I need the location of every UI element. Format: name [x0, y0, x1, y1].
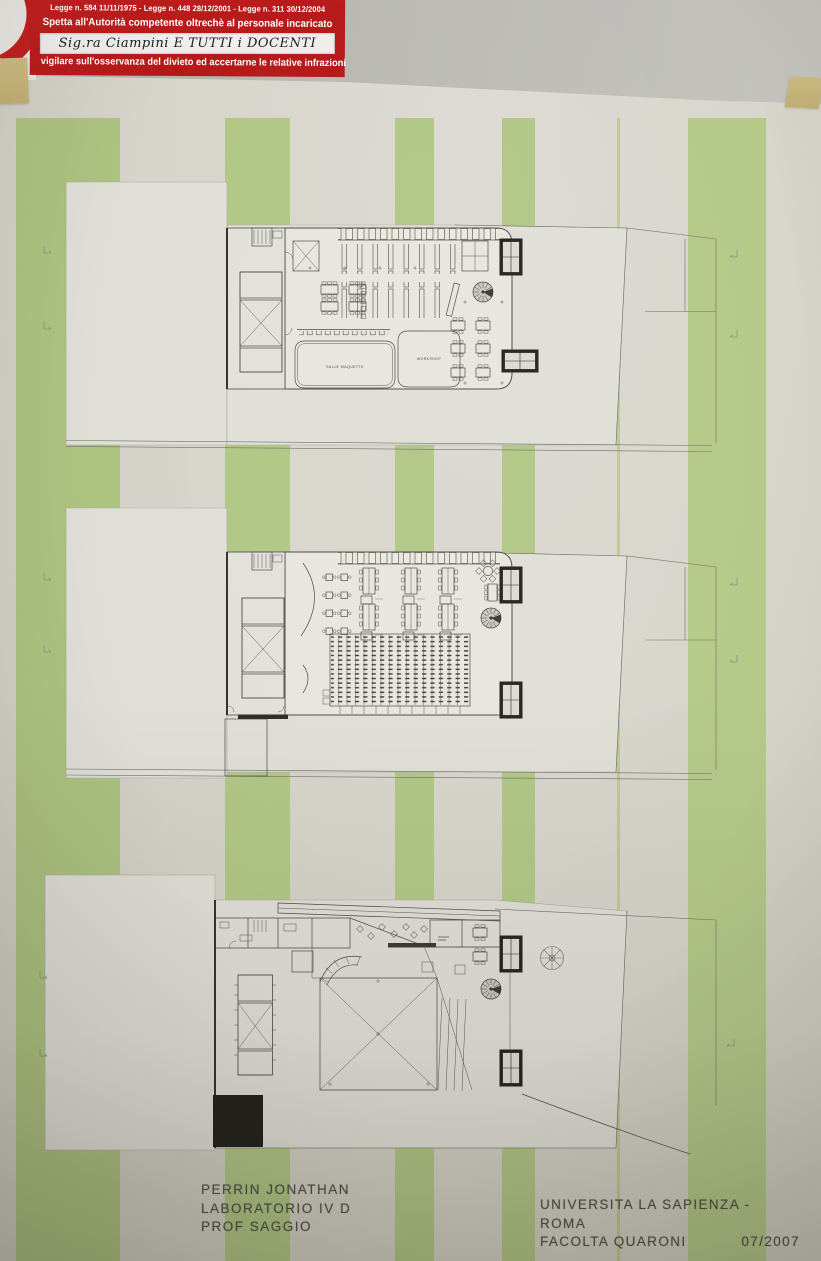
author-name: PERRIN JONATHAN	[201, 1181, 351, 1200]
tape-left	[0, 57, 29, 104]
date-label: 07/2007	[741, 1233, 800, 1252]
plan-ground-floor: SALLE MAQUETTE WORKSHOP	[66, 182, 716, 452]
plan-roof-level	[45, 875, 716, 1154]
no-smoking-sign: in presenza di una donna in evidente sta…	[30, 0, 346, 77]
black-void	[213, 1095, 263, 1147]
sign-footer-line: vigilare sull'osservanza del divieto ed …	[41, 56, 334, 69]
handwritten-note: Sig.ra Ciampini E TUTTI i DOCENTI	[59, 36, 317, 51]
floor-plans: SALLE MAQUETTE WORKSHOP	[0, 0, 821, 1261]
workshop-label: WORKSHOP	[417, 357, 442, 361]
photo-scene: SALLE MAQUETTE WORKSHOP	[0, 0, 821, 1261]
course-name: LABORATORIO IV D	[201, 1200, 351, 1219]
tree-symbol	[541, 947, 564, 970]
tape-right	[785, 76, 821, 109]
faculty-name: FACOLTA QUARONI	[540, 1233, 687, 1252]
plan-first-floor	[66, 508, 716, 780]
credits-right: UNIVERSITA LA SAPIENZA - ROMA FACOLTA QU…	[540, 1196, 800, 1252]
salle-maquette-label: SALLE MAQUETTE	[326, 365, 364, 369]
professor-name: PROF SAGGIO	[201, 1218, 351, 1237]
university-name: UNIVERSITA LA SAPIENZA - ROMA	[540, 1196, 800, 1233]
sign-line-small: in evidente stato di gravidanza o in pre…	[30, 0, 345, 2]
handwritten-strip: Sig.ra Ciampini E TUTTI i DOCENTI	[40, 33, 335, 54]
sign-laws-line: Legge n. 584 11/11/1975 - Legge n. 448 2…	[40, 3, 336, 14]
sign-authority-line: Spetta all'Autorità competente oltrechè …	[41, 16, 334, 30]
credits-left: PERRIN JONATHAN LABORATORIO IV D PROF SA…	[201, 1181, 351, 1237]
